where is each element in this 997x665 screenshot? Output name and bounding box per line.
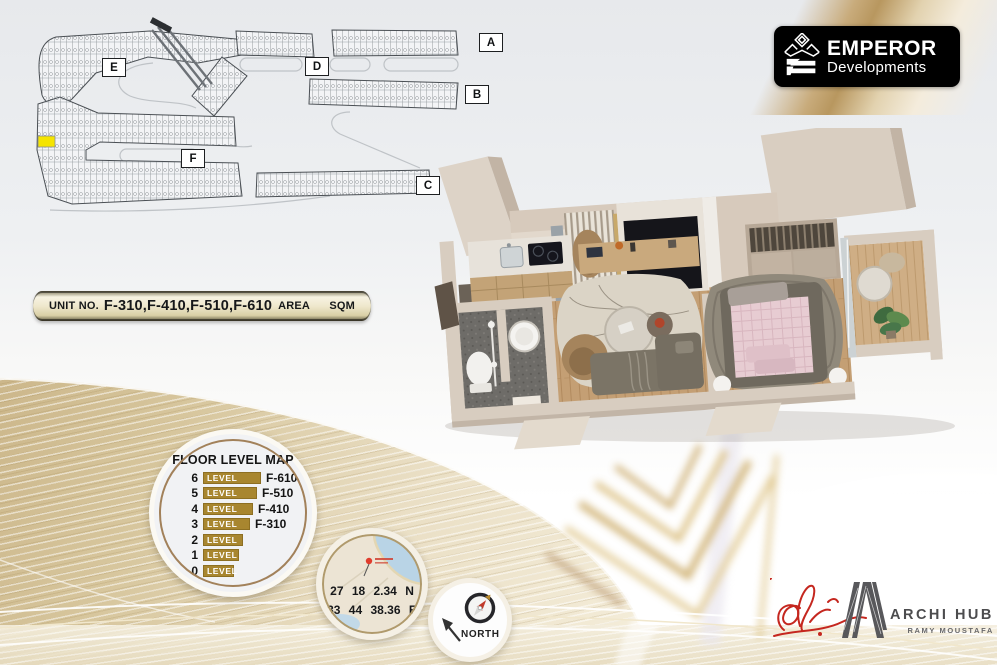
threshold-left [512, 416, 592, 449]
level-bar: LEVEL [203, 549, 239, 561]
latitude: 27 18 2.34 N [322, 582, 422, 601]
site-plan-label-b: B [465, 85, 489, 104]
level-number: 4 [188, 502, 198, 516]
level-unit: F-510 [262, 486, 293, 500]
map-roads [330, 568, 388, 612]
sofa-pillow [675, 341, 694, 354]
unit-no-label: UNIT NO. [49, 300, 99, 312]
site-plan-label-f: F [181, 149, 205, 168]
site-buildings [37, 30, 458, 204]
emperor-crown-icon [781, 33, 823, 81]
archi-hub-logo: ARCHI HUB RAMY MOUSTAFA [838, 580, 988, 642]
level-number: 2 [188, 533, 198, 547]
threshold-right [704, 403, 784, 436]
building-d [236, 31, 314, 57]
emperor-logo: EMPEROR Developments [774, 26, 960, 87]
level-number: 6 [188, 471, 198, 485]
highlighted-unit [38, 136, 55, 147]
level-bar-label: LEVEL [203, 519, 237, 529]
level-bar-label: LEVEL [203, 504, 237, 514]
deco-bottle [630, 242, 636, 251]
level-unit: F-610 [266, 471, 297, 485]
designer-name: RAMY MOUSTAFA [890, 627, 994, 635]
level-row-5: 5 LEVEL F-510 [188, 486, 312, 502]
apartment-3d-floor-plan [420, 128, 980, 450]
level-row-6: 6 LEVEL F-610 [188, 470, 312, 486]
map-pin-icon [366, 558, 372, 564]
site-plan-label-e: E [102, 58, 126, 77]
unit-numbers: F-310,F-410,F-510,F-610 [104, 298, 272, 314]
pink-pillow-2 [754, 358, 795, 375]
level-row-1: 1 LEVEL [188, 548, 312, 564]
coordinates: 27 18 2.34 N 33 44 38.36 E [322, 582, 422, 619]
building-a [332, 30, 458, 56]
label-b-text: B [473, 89, 481, 101]
level-bar: LEVEL [203, 518, 250, 530]
building-c [256, 170, 431, 197]
bed-area [701, 269, 848, 395]
floor-level-map-title: FLOOR LEVEL MAP [154, 453, 312, 467]
sqm-label: SQM [329, 300, 355, 312]
north-compass-medallion: NORTH [428, 578, 512, 662]
label-e-text: E [110, 62, 118, 74]
level-number: 3 [188, 517, 198, 531]
building-d-wing [192, 57, 247, 116]
compass-icon [461, 589, 499, 627]
brand-name: EMPEROR [827, 38, 937, 59]
level-unit: F-310 [255, 517, 286, 531]
kitchen-sink [500, 246, 523, 267]
floor-level-rows: 6 LEVEL F-610 5 LEVEL F-510 4 LEVEL F-41… [154, 470, 312, 579]
level-row-2: 2 LEVEL [188, 532, 312, 548]
level-unit: F-410 [258, 502, 289, 516]
level-bar: LEVEL [203, 534, 243, 546]
label-f-text: F [189, 153, 196, 165]
balcony [840, 230, 943, 366]
level-row-4: 4 LEVEL F-410 [188, 501, 312, 517]
location-map [322, 534, 422, 634]
brochure-page: A B C D E F EMPEROR Developments UNIT [0, 0, 997, 665]
label-d-text: D [313, 61, 321, 73]
area-label: AREA [278, 300, 310, 312]
level-bar: LEVEL [203, 565, 234, 577]
site-plan-label-a: A [479, 33, 503, 52]
level-bar-label: LEVEL [203, 488, 237, 498]
laptop [586, 247, 603, 258]
floor-level-map: FLOOR LEVEL MAP 6 LEVEL F-610 5 LEVEL F-… [149, 429, 317, 597]
site-plan-label-d: D [305, 57, 329, 76]
level-number: 0 [188, 564, 198, 578]
map-water [374, 534, 422, 584]
deco-box [668, 240, 677, 249]
level-bar-label: LEVEL [203, 550, 237, 560]
label-a-text: A [487, 37, 495, 49]
cooktop [528, 242, 563, 266]
level-bar: LEVEL [203, 487, 257, 499]
level-bar: LEVEL [203, 472, 261, 484]
level-bar: LEVEL [203, 503, 253, 515]
level-bar-label: LEVEL [203, 566, 237, 576]
building-b [309, 79, 458, 109]
unit-banner: UNIT NO. F-310,F-410,F-510,F-610 AREA SQ… [33, 291, 371, 321]
location-map-medallion: 27 18 2.34 N 33 44 38.36 E [316, 528, 428, 640]
level-row-3: 3 LEVEL F-310 [188, 517, 312, 533]
map-pin-label-decoration [375, 558, 393, 560]
level-row-0: 0 LEVEL [188, 563, 312, 579]
level-number: 5 [188, 486, 198, 500]
studio-name: ARCHI HUB [890, 608, 994, 623]
map-pin-label-decoration [375, 562, 388, 564]
longitude: 33 44 38.36 E [322, 601, 422, 620]
archi-hub-mark-icon [838, 580, 888, 640]
level-number: 1 [188, 548, 198, 562]
brand-tagline: Developments [827, 60, 937, 75]
north-label: NORTH [461, 629, 500, 640]
level-bar-label: LEVEL [203, 535, 237, 545]
level-bar-label: LEVEL [203, 473, 237, 483]
